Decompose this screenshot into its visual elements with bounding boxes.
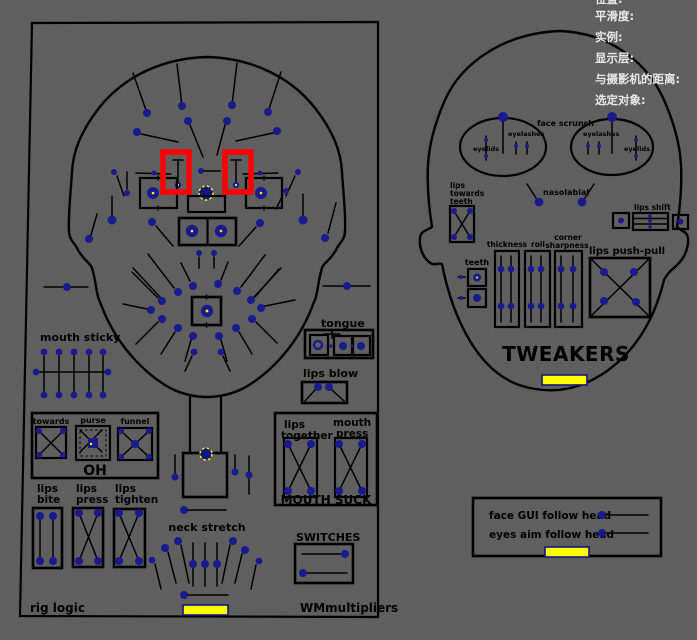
control-dot[interactable] bbox=[648, 214, 652, 218]
control-line bbox=[177, 64, 182, 106]
control-dot[interactable] bbox=[178, 102, 186, 110]
control-dot[interactable] bbox=[115, 557, 123, 565]
control-dot[interactable] bbox=[264, 108, 272, 116]
control-line bbox=[241, 255, 265, 287]
control-dot[interactable] bbox=[525, 144, 529, 148]
control-dot[interactable] bbox=[357, 342, 365, 350]
control-dot[interactable] bbox=[476, 277, 478, 279]
control-dot[interactable] bbox=[174, 288, 182, 296]
nasolabial-label: nasolabial bbox=[543, 188, 589, 197]
control-dot[interactable] bbox=[600, 297, 608, 305]
mouth-suck-label: MOUTH SUCK bbox=[281, 493, 372, 507]
control-dot[interactable] bbox=[71, 349, 78, 356]
control-dot[interactable] bbox=[260, 192, 263, 195]
control-dot[interactable] bbox=[283, 188, 289, 194]
control-dot[interactable] bbox=[63, 283, 71, 291]
mouth-controls[interactable] bbox=[123, 218, 295, 371]
follow-panel: face GUI follow head eyes aim follow hea… bbox=[473, 498, 661, 557]
tongue-label: tongue bbox=[321, 317, 365, 330]
control-dot[interactable] bbox=[535, 198, 544, 207]
shape bbox=[302, 382, 347, 403]
control-dot[interactable] bbox=[634, 154, 638, 158]
control-dot[interactable] bbox=[49, 512, 57, 520]
control-line bbox=[136, 322, 158, 344]
control-dot[interactable] bbox=[607, 112, 617, 122]
control-dot[interactable] bbox=[189, 282, 197, 290]
control-dot[interactable] bbox=[618, 218, 624, 224]
control-dot[interactable] bbox=[71, 392, 78, 399]
neck-selected-bar[interactable] bbox=[183, 605, 228, 615]
control-dot[interactable] bbox=[143, 109, 151, 117]
control-dot[interactable] bbox=[632, 298, 640, 306]
control-dot[interactable] bbox=[36, 512, 44, 520]
control-dot[interactable] bbox=[350, 344, 353, 347]
control-dot[interactable] bbox=[41, 392, 48, 399]
control-dot[interactable] bbox=[206, 310, 209, 313]
mouth-sticky-label: mouth sticky bbox=[40, 331, 120, 344]
control-dot[interactable] bbox=[218, 349, 225, 356]
control-dot[interactable] bbox=[213, 560, 221, 568]
control-dot[interactable] bbox=[149, 557, 156, 564]
control-dot[interactable] bbox=[459, 296, 463, 300]
control-dot[interactable] bbox=[314, 341, 322, 349]
control-dot[interactable] bbox=[514, 144, 518, 148]
sharpness-label: sharpness bbox=[545, 241, 589, 250]
control-dot[interactable] bbox=[161, 544, 169, 552]
rig-logic-label: rig logic bbox=[30, 601, 85, 615]
control-dot[interactable] bbox=[211, 250, 217, 256]
control-line bbox=[181, 263, 190, 281]
control-line bbox=[132, 272, 158, 298]
jaw-controls[interactable] bbox=[171, 448, 252, 514]
control-line bbox=[123, 304, 147, 309]
control-dot[interactable] bbox=[220, 230, 223, 233]
lips-press-panel[interactable]: lips press bbox=[73, 483, 108, 567]
control-dot[interactable] bbox=[36, 557, 44, 565]
control-dot[interactable] bbox=[498, 266, 505, 273]
lips-tighten-label-2: tighten bbox=[115, 494, 158, 506]
face-scrunch-label: face scrunch bbox=[537, 119, 594, 128]
control-dot[interactable] bbox=[90, 443, 92, 445]
control-dot[interactable] bbox=[229, 537, 237, 545]
control-dot[interactable] bbox=[343, 282, 351, 290]
control-dot[interactable] bbox=[484, 154, 488, 158]
hud-line-2: 实例: bbox=[595, 30, 623, 44]
control-dot[interactable] bbox=[196, 250, 202, 256]
control-dot[interactable] bbox=[586, 144, 590, 148]
cheek-side-sliders[interactable] bbox=[44, 282, 370, 291]
control-line bbox=[91, 214, 97, 235]
control-dot[interactable] bbox=[108, 216, 117, 225]
oh-panel[interactable]: OH towards purse funnel bbox=[32, 413, 158, 479]
control-dot[interactable] bbox=[258, 171, 263, 176]
control-dot[interactable] bbox=[115, 509, 123, 517]
hud-line-4: 与摄影机的距离: bbox=[595, 72, 680, 86]
control-dot[interactable] bbox=[235, 184, 237, 186]
tweakers-title: TWEAKERS bbox=[502, 342, 630, 366]
control-line bbox=[133, 268, 160, 297]
control-dot[interactable] bbox=[307, 440, 315, 448]
nose-controls[interactable] bbox=[179, 218, 236, 268]
eyelids-right-label: eyelids bbox=[624, 145, 650, 153]
eye-controls[interactable] bbox=[85, 160, 336, 243]
switches-panel[interactable]: SWITCHES bbox=[295, 531, 360, 583]
brow-controls[interactable] bbox=[133, 63, 281, 157]
lips-tighten-panel[interactable]: lips tighten bbox=[114, 483, 158, 567]
tongue-panel[interactable]: tongue bbox=[305, 317, 373, 358]
control-dot[interactable] bbox=[49, 557, 57, 565]
control-dot[interactable] bbox=[86, 349, 93, 356]
roll-label: roll bbox=[531, 240, 545, 249]
eyelashes-right-label: eyelashes bbox=[583, 130, 620, 138]
shape bbox=[310, 335, 328, 355]
lips-push-pull-panel[interactable]: lips push-pull bbox=[589, 246, 665, 317]
control-dot[interactable] bbox=[245, 471, 252, 478]
lips-bite-label-2: bite bbox=[37, 494, 60, 506]
control-dot[interactable] bbox=[36, 452, 42, 458]
control-dot[interactable] bbox=[467, 234, 473, 240]
tweakers-selected-bar[interactable] bbox=[542, 375, 587, 385]
control-dot[interactable] bbox=[473, 294, 481, 302]
thickness-label: thickness bbox=[487, 240, 528, 249]
lips-blow-panel[interactable]: lips blow bbox=[302, 367, 358, 403]
control-dot[interactable] bbox=[648, 225, 652, 229]
facial-rig-picker: mouth sticky tongue bbox=[0, 0, 697, 640]
nasolabial-controls[interactable]: nasolabial bbox=[527, 184, 594, 206]
control-line bbox=[133, 73, 147, 113]
control-dot[interactable] bbox=[451, 208, 457, 214]
control-line bbox=[148, 254, 174, 288]
control-dot[interactable] bbox=[124, 190, 130, 196]
control-dot[interactable] bbox=[558, 266, 565, 273]
control-line bbox=[161, 332, 175, 354]
control-dot[interactable] bbox=[191, 349, 198, 356]
control-dot[interactable] bbox=[36, 428, 42, 434]
hud-line-3: 显示层: bbox=[595, 51, 634, 65]
control-dot[interactable] bbox=[189, 560, 197, 568]
control-dot[interactable] bbox=[498, 303, 505, 310]
control-dot[interactable] bbox=[648, 219, 652, 223]
control-dot[interactable] bbox=[56, 392, 63, 399]
control-dot[interactable] bbox=[180, 506, 188, 514]
control-dot[interactable] bbox=[467, 208, 473, 214]
control-dot[interactable] bbox=[339, 342, 347, 350]
control-dot[interactable] bbox=[191, 230, 194, 233]
shape bbox=[295, 544, 353, 583]
control-dot[interactable] bbox=[232, 324, 240, 332]
lips-push-pull-label: lips push-pull bbox=[589, 246, 665, 257]
control-line bbox=[232, 63, 237, 105]
control-dot[interactable] bbox=[223, 117, 231, 125]
control-dot[interactable] bbox=[118, 454, 124, 460]
control-dot[interactable] bbox=[201, 560, 209, 568]
control-dot[interactable] bbox=[158, 315, 166, 323]
control-dot[interactable] bbox=[299, 216, 308, 225]
control-dot[interactable] bbox=[295, 169, 301, 175]
control-dot[interactable] bbox=[118, 428, 124, 434]
control-dot[interactable] bbox=[133, 128, 141, 136]
control-dot[interactable] bbox=[146, 454, 152, 460]
control-dot[interactable] bbox=[341, 550, 349, 558]
shape bbox=[555, 251, 582, 327]
control-dot[interactable] bbox=[600, 268, 608, 276]
control-line bbox=[155, 564, 161, 589]
control-line bbox=[265, 300, 295, 306]
control-dot[interactable] bbox=[284, 440, 292, 448]
control-line bbox=[236, 133, 273, 141]
purse-control[interactable] bbox=[88, 438, 98, 448]
control-dot[interactable] bbox=[75, 557, 83, 565]
neck-lines bbox=[190, 397, 221, 451]
control-dot[interactable] bbox=[198, 168, 204, 174]
control-dot[interactable] bbox=[214, 280, 222, 288]
control-dot[interactable] bbox=[105, 369, 112, 376]
control-dot[interactable] bbox=[335, 440, 343, 448]
control-dot[interactable] bbox=[94, 557, 102, 565]
control-line bbox=[328, 203, 336, 233]
control-dot[interactable] bbox=[56, 349, 63, 356]
control-line bbox=[117, 176, 124, 196]
lips-shift-label: lips shift bbox=[634, 203, 671, 212]
towards-label: towards bbox=[33, 417, 70, 426]
control-dot[interactable] bbox=[147, 306, 155, 314]
control-dot[interactable] bbox=[528, 266, 535, 273]
control-dot[interactable] bbox=[538, 303, 545, 310]
eyes-aim-follow-label: eyes aim follow head bbox=[489, 529, 614, 541]
control-dot[interactable] bbox=[75, 509, 83, 517]
ltt-label-3: teeth bbox=[450, 197, 473, 206]
control-dot[interactable] bbox=[100, 349, 107, 356]
control-dot[interactable] bbox=[248, 315, 256, 323]
control-line bbox=[239, 332, 252, 354]
control-dot[interactable] bbox=[41, 349, 48, 356]
lips-blow-label: lips blow bbox=[303, 367, 358, 380]
control-dot[interactable] bbox=[111, 169, 117, 175]
lips-bite-panel[interactable]: lips bite bbox=[33, 483, 62, 568]
control-line bbox=[527, 184, 536, 198]
teeth-panel[interactable]: teeth bbox=[458, 258, 489, 307]
control-dot[interactable] bbox=[131, 440, 139, 448]
control-dot[interactable] bbox=[86, 392, 93, 399]
shape bbox=[525, 251, 550, 327]
control-dot[interactable] bbox=[33, 369, 40, 376]
control-line bbox=[185, 340, 191, 361]
lips-towards-teeth-panel[interactable]: lips towards teeth bbox=[450, 181, 485, 242]
control-dot[interactable] bbox=[508, 266, 515, 273]
control-dot[interactable] bbox=[233, 287, 241, 295]
neck-stretch-label: neck stretch bbox=[168, 521, 245, 534]
control-line bbox=[168, 552, 176, 583]
control-dot[interactable] bbox=[184, 117, 192, 125]
control-dot[interactable] bbox=[100, 392, 107, 399]
control-dot[interactable] bbox=[174, 324, 182, 332]
control-dot[interactable] bbox=[146, 428, 152, 434]
control-dot[interactable] bbox=[135, 557, 143, 565]
control-dot[interactable] bbox=[498, 112, 508, 122]
control-dot[interactable] bbox=[558, 303, 565, 310]
control-dot[interactable] bbox=[570, 303, 577, 310]
control-line bbox=[268, 72, 281, 112]
control-dot[interactable] bbox=[152, 171, 157, 176]
control-dot[interactable] bbox=[570, 266, 577, 273]
left-panel: mouth sticky tongue bbox=[20, 22, 398, 617]
control-dot[interactable] bbox=[678, 219, 684, 225]
control-line bbox=[332, 390, 344, 401]
lips-press-label-2: press bbox=[76, 494, 108, 506]
rig-canvas: mouth sticky tongue bbox=[0, 0, 697, 640]
control-dot[interactable] bbox=[329, 344, 332, 347]
face-gui-follow-slider[interactable] bbox=[598, 511, 606, 519]
switches-label: SWITCHES bbox=[296, 531, 360, 544]
control-dot[interactable] bbox=[459, 275, 463, 279]
control-dot[interactable] bbox=[85, 235, 93, 243]
teeth-label: teeth bbox=[465, 258, 490, 267]
control-dot[interactable] bbox=[321, 234, 329, 242]
eyelashes-left-label: eyelashes bbox=[508, 130, 545, 138]
control-line bbox=[305, 390, 315, 401]
control-dot[interactable] bbox=[158, 297, 166, 305]
neck-stretch-panel[interactable]: neck stretch bbox=[149, 521, 263, 615]
control-dot[interactable] bbox=[228, 101, 236, 109]
control-dot[interactable] bbox=[256, 219, 264, 227]
thickness-panel[interactable]: thickness bbox=[487, 240, 528, 327]
control-dot[interactable] bbox=[174, 537, 182, 545]
control-dot[interactable] bbox=[180, 591, 188, 599]
purse-label: purse bbox=[80, 416, 106, 425]
mouth-suck-panel[interactable]: lips together mouth press MOUTH SUCK bbox=[275, 413, 377, 507]
roll-panel[interactable]: roll bbox=[525, 240, 550, 327]
control-line bbox=[181, 545, 189, 583]
control-dot[interactable] bbox=[241, 546, 249, 554]
control-dot[interactable] bbox=[578, 198, 587, 207]
follow-selected-bar[interactable] bbox=[545, 547, 589, 557]
oh-label: OH bbox=[83, 463, 107, 479]
hud-line-5: 选定对象: bbox=[595, 93, 646, 107]
control-dot[interactable] bbox=[528, 303, 535, 310]
control-line bbox=[256, 322, 277, 343]
eyes-aim-follow-slider[interactable] bbox=[598, 529, 606, 537]
control-dot[interactable] bbox=[273, 127, 281, 135]
control-dot[interactable] bbox=[94, 509, 102, 517]
control-dot[interactable] bbox=[231, 468, 238, 475]
corner-sharpness-panel[interactable]: corner sharpness bbox=[545, 233, 589, 327]
control-line bbox=[221, 262, 228, 280]
hud-line-1: 平滑度: bbox=[595, 9, 634, 23]
control-line bbox=[235, 554, 242, 583]
control-dot[interactable] bbox=[299, 569, 307, 577]
control-dot[interactable] bbox=[451, 234, 457, 240]
control-dot[interactable] bbox=[538, 266, 545, 273]
control-dot[interactable] bbox=[358, 440, 366, 448]
control-dot[interactable] bbox=[597, 144, 601, 148]
mouth-sticky-panel[interactable]: mouth sticky bbox=[33, 331, 121, 398]
control-line bbox=[239, 227, 256, 246]
control-dot[interactable] bbox=[171, 473, 178, 480]
control-dot[interactable] bbox=[60, 428, 66, 434]
control-dot[interactable] bbox=[634, 138, 638, 142]
control-line bbox=[254, 268, 281, 297]
control-line bbox=[141, 134, 178, 142]
control-dot[interactable] bbox=[148, 218, 156, 226]
hud-readout: 位置: 平滑度: 实例: 显示层: 与摄影机的距离: 选定对象: bbox=[595, 0, 680, 107]
face-gui-follow-label: face GUI follow head bbox=[489, 510, 611, 522]
control-line bbox=[251, 565, 256, 589]
eye-center-selected-control[interactable] bbox=[199, 186, 213, 200]
control-dot[interactable] bbox=[60, 452, 66, 458]
jaw-selected-control[interactable] bbox=[200, 448, 212, 460]
hud-line-0: 位置: bbox=[595, 0, 623, 6]
control-dot[interactable] bbox=[215, 332, 223, 340]
control-dot[interactable] bbox=[257, 304, 265, 312]
control-dot[interactable] bbox=[189, 332, 197, 340]
control-line bbox=[190, 125, 203, 157]
control-dot[interactable] bbox=[630, 268, 638, 276]
control-dot[interactable] bbox=[135, 509, 143, 517]
control-line bbox=[156, 226, 173, 246]
control-dot[interactable] bbox=[508, 303, 515, 310]
control-dot[interactable] bbox=[256, 558, 263, 565]
control-line bbox=[222, 545, 230, 583]
shape bbox=[495, 251, 519, 327]
funnel-label: funnel bbox=[121, 417, 150, 426]
control-dot[interactable] bbox=[152, 192, 155, 195]
wm-multipliers-label: WMmultipliers bbox=[300, 601, 398, 615]
control-dot[interactable] bbox=[484, 138, 488, 142]
